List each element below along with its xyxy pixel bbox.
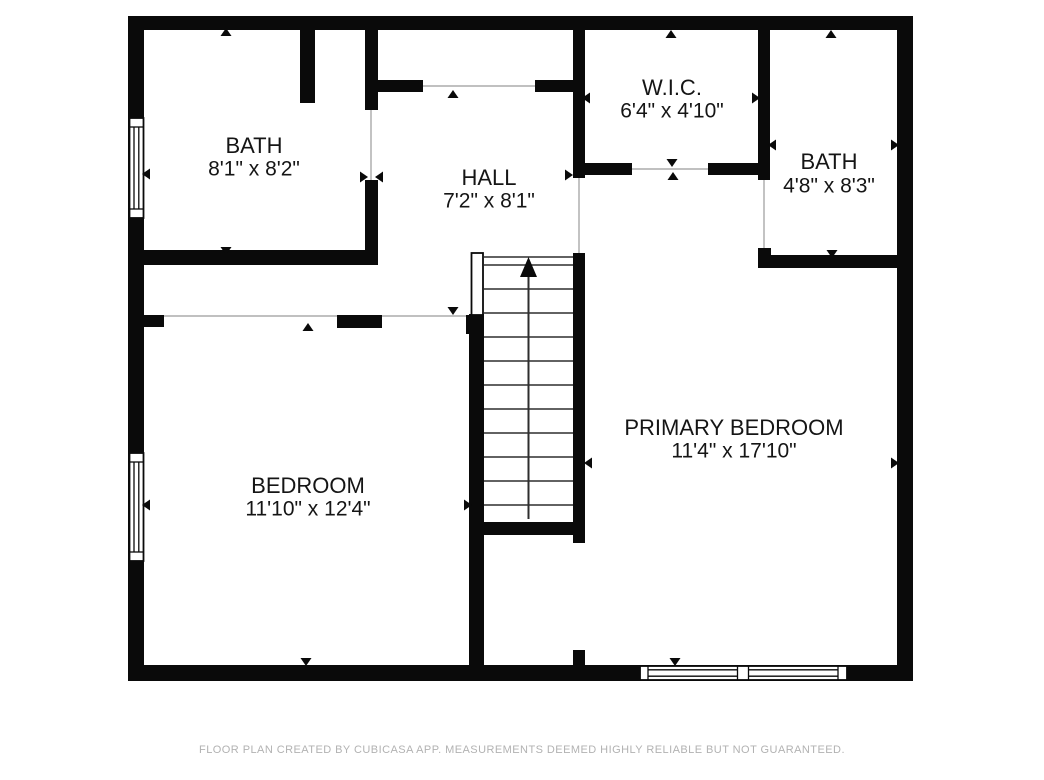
- window-left-upper-frame: [130, 118, 144, 218]
- room-label-wic: W.I.C.6'4" x 4'10": [620, 75, 724, 123]
- hall-top-wall-left: [378, 80, 423, 92]
- hall-top-wall-right: [535, 80, 573, 92]
- window-left-upper: [130, 118, 144, 218]
- measure-marker-down: [301, 658, 312, 666]
- top-closet-stub: [300, 16, 315, 103]
- floor-plan-svg: BATH8'1" x 8'2"HALL7'2" x 8'1"W.I.C.6'4"…: [0, 0, 1044, 780]
- disclaimer-text: FLOOR PLAN CREATED BY CUBICASA APP. MEAS…: [0, 744, 1044, 756]
- bath1-hall-wall-upper: [365, 16, 378, 110]
- measure-marker-left: [584, 458, 592, 469]
- measure-marker-up: [448, 90, 459, 98]
- markers-layer: [142, 28, 899, 666]
- room-name-primary-bedroom: PRIMARY BEDROOM: [624, 415, 843, 440]
- stairs-newel-post-frame: [472, 253, 484, 315]
- wic-left-wall: [573, 16, 585, 178]
- room-dims-bath-1: 8'1" x 8'2": [208, 158, 300, 181]
- bedroom-top-stub: [144, 315, 164, 327]
- window-left-lower: [130, 453, 144, 561]
- stairs-layer: [484, 257, 573, 519]
- floor-plan-page: BATH8'1" x 8'2"HALL7'2" x 8'1"W.I.C.6'4"…: [0, 0, 1044, 780]
- measure-marker-down: [448, 307, 459, 315]
- room-name-wic: W.I.C.: [642, 75, 702, 100]
- outer-wall-right: [897, 16, 913, 681]
- room-label-primary-bedroom: PRIMARY BEDROOM11'4" x 17'10": [624, 415, 843, 463]
- room-name-hall: HALL: [461, 165, 516, 190]
- room-label-bath-1: BATH8'1" x 8'2": [208, 133, 300, 181]
- room-dims-hall: 7'2" x 8'1": [443, 190, 535, 213]
- bedroom-top-wall: [337, 315, 382, 328]
- room-name-bedroom: BEDROOM: [251, 473, 365, 498]
- stairs-direction-arrow: [520, 257, 537, 277]
- room-dims-primary-bedroom: 11'4" x 17'10": [671, 440, 796, 463]
- room-label-hall: HALL7'2" x 8'1": [443, 165, 535, 213]
- outer-wall-top: [128, 16, 913, 30]
- measure-marker-right: [565, 170, 573, 181]
- window-bottom-frame: [640, 666, 847, 680]
- stairs-left-wall: [469, 314, 484, 681]
- measure-marker-up: [303, 323, 314, 331]
- measure-marker-up: [666, 30, 677, 38]
- outer-wall-left: [128, 16, 144, 681]
- stairs-bottom-wall: [478, 522, 585, 535]
- measure-marker-down: [670, 658, 681, 666]
- window-bottom: [640, 666, 847, 680]
- understair-stub: [573, 650, 585, 681]
- room-label-bath-2: BATH4'8" x 8'3": [783, 149, 875, 198]
- room-name-bath-1: BATH: [225, 133, 282, 158]
- room-label-bedroom: BEDROOM11'10" x 12'4": [245, 473, 370, 521]
- room-dims-bedroom: 11'10" x 12'4": [245, 498, 370, 521]
- measure-marker-down: [667, 159, 678, 167]
- measure-marker-up: [668, 172, 679, 180]
- room-dims-wic: 6'4" x 4'10": [620, 100, 724, 123]
- wic-bottom-wall-left: [573, 163, 632, 175]
- window-left-lower-frame: [130, 453, 144, 561]
- bath2-bottom-wall: [758, 255, 897, 268]
- walls-layer: [128, 16, 913, 681]
- measure-marker-up: [826, 30, 837, 38]
- stairs-newel-post: [472, 253, 484, 315]
- room-dims-bath-2: 4'8" x 8'3": [783, 175, 875, 198]
- room-name-bath-2: BATH: [800, 149, 857, 174]
- stairs-right-wall: [573, 253, 585, 543]
- bath1-bottom-wall: [144, 250, 378, 265]
